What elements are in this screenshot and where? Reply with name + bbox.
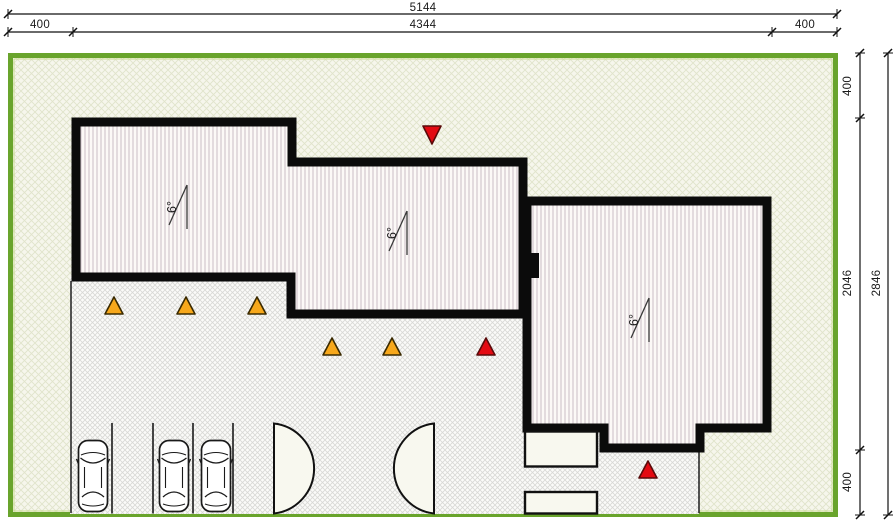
step-upper (525, 432, 597, 467)
dim-label-site-height-total: 2846 (871, 270, 883, 297)
parked-car[interactable] (158, 441, 191, 512)
dim-label-top-offset: 400 (842, 76, 854, 96)
step-lower (525, 492, 597, 514)
building-right-wing[interactable] (526, 201, 767, 448)
building-right-walls (527, 201, 767, 448)
dim-label-building-height: 2046 (842, 270, 854, 297)
dimension-right-total (883, 49, 893, 519)
dim-label-left-offset: 400 (30, 19, 50, 31)
slope-label: 6° (385, 227, 399, 239)
chimney-block (526, 253, 539, 278)
dimension-right-segments (855, 49, 865, 519)
dim-label-building-width: 4344 (410, 19, 437, 31)
parked-car[interactable] (200, 441, 233, 512)
site-plan-page: 6° 6° 6° 5144 400 4344 400 (0, 0, 894, 522)
parked-car[interactable] (77, 441, 110, 512)
dim-label-right-offset: 400 (795, 19, 815, 31)
dim-label-bottom-offset: 400 (842, 472, 854, 492)
dim-label-site-width-total: 5144 (410, 2, 437, 14)
slope-label: 6° (627, 314, 641, 326)
slope-label: 6° (165, 201, 179, 213)
site-plan-canvas[interactable]: 6° 6° 6° 5144 400 4344 400 (0, 0, 894, 522)
